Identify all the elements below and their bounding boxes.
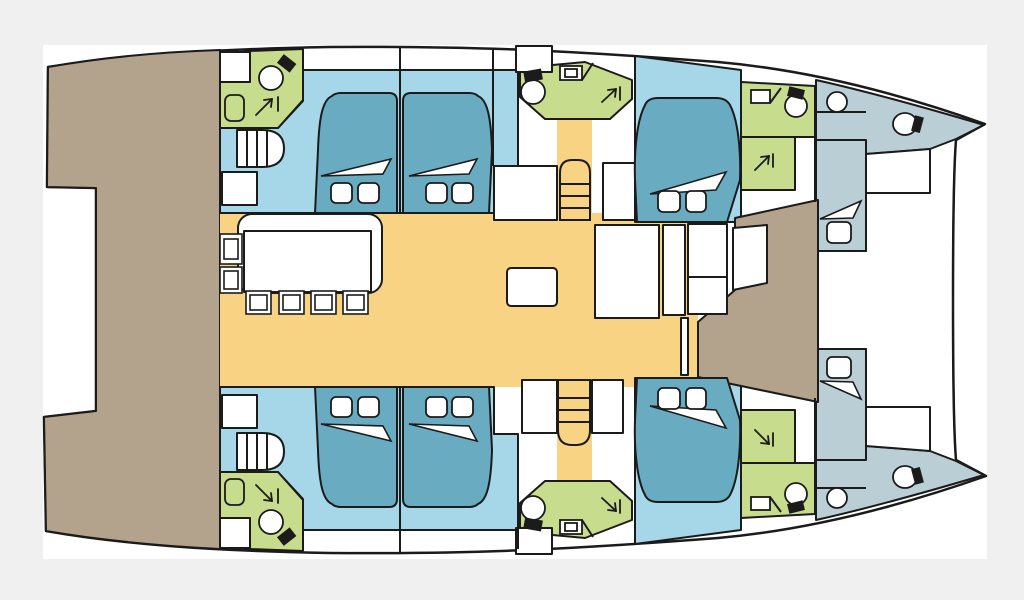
galley-counter [688,277,727,314]
locker [220,52,250,82]
locker [516,528,552,554]
stairs-center-top [560,160,590,220]
locker [220,518,250,548]
deck-plan-canvas [0,0,1024,600]
side-seat [220,234,242,264]
pillow [658,191,680,212]
deck-plan-svg [0,0,1024,600]
landing-top-left [494,166,557,220]
landing-bottom-left [522,380,557,433]
toilet-icon [259,510,283,534]
toilet-icon [259,66,283,90]
locker [516,46,552,72]
cockpit-door-panel [733,225,767,290]
wardrobe [222,395,257,428]
pillow [658,388,680,409]
toilet-icon [521,80,545,104]
wall-partition [681,318,688,375]
pillow [426,183,447,203]
galley-counter [663,225,685,315]
pillow [426,397,447,417]
dining-chair [343,291,368,314]
pillow [452,397,473,417]
pillow [358,183,379,203]
sink-icon [751,90,770,103]
pillow [331,397,352,417]
pillow [686,388,706,409]
dining-chair [279,291,304,314]
landing-top-right [603,163,635,220]
pillow [358,397,379,417]
galley-counter [595,225,659,318]
dining-chair [246,291,271,314]
dining-chair [311,291,336,314]
stair-run [237,433,284,470]
berth-pillow [827,222,851,243]
crew-sink-icon [827,488,847,508]
sink-icon [751,497,770,510]
double-bed [315,387,397,507]
foredeck-locker-top [866,149,930,193]
pillow [686,191,706,212]
toilet-icon [521,496,545,520]
stair-run [237,130,284,167]
double-bed [403,93,492,213]
toilet-icon [785,483,807,505]
stair-run [558,380,590,445]
crew-sink-icon [827,92,847,112]
sink-icon [560,520,582,534]
foredeck-locker-bottom [866,407,930,451]
sink-icon [560,66,582,80]
double-bed [403,387,492,507]
double-bed [635,98,740,222]
landing-bottom-right [592,380,623,433]
stairs-center-bottom [558,380,590,445]
dining-table [244,231,371,292]
side-seat [220,267,242,293]
galley-counter [688,224,727,277]
wardrobe [222,172,257,205]
double-bed [635,378,740,502]
toilet-icon [785,95,807,117]
pillow [331,183,352,203]
coffee-table [507,268,557,306]
pillow [452,183,473,203]
stair-run [560,160,590,220]
berth-pillow [827,357,851,378]
double-bed [315,93,397,213]
